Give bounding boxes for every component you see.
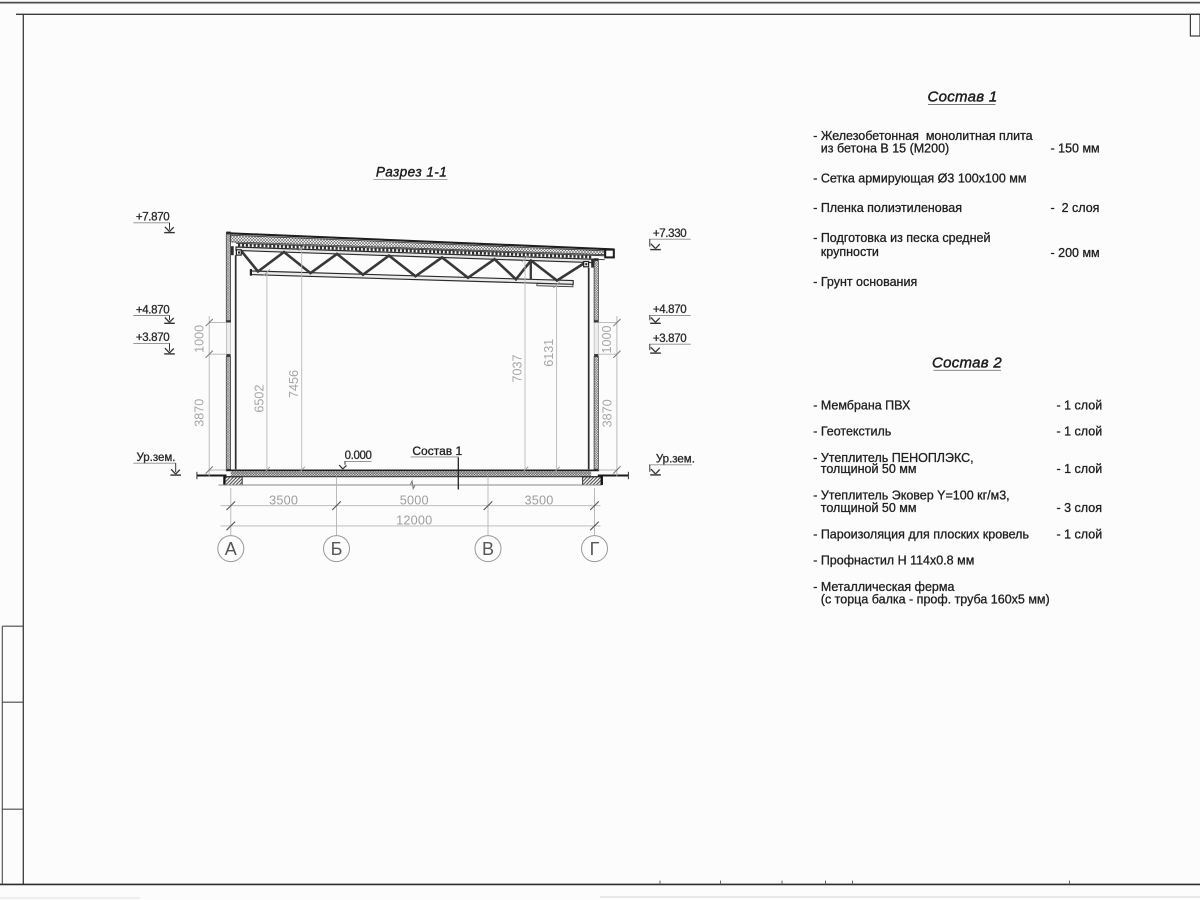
svg-text:Состав 1: Состав 1 <box>927 88 997 105</box>
svg-text:Б: Б <box>331 539 343 559</box>
svg-text:+3.870: +3.870 <box>136 332 169 344</box>
svg-text:толщиной 50 мм: толщиной 50 мм <box>821 501 917 515</box>
svg-text:5000: 5000 <box>400 494 429 508</box>
svg-text:- 1 слой: - 1 слой <box>1057 462 1103 476</box>
svg-text:Ур.зем.: Ур.зем. <box>656 454 695 466</box>
svg-text:3500: 3500 <box>269 494 298 508</box>
svg-text:1000: 1000 <box>600 325 614 353</box>
svg-text:0.000: 0.000 <box>345 450 372 462</box>
svg-text:- 2 слоя: - 2 слоя <box>1051 201 1100 215</box>
svg-text:(с торца балка - проф. труба 1: (с торца балка - проф. труба 160x5 мм) <box>821 593 1050 607</box>
svg-text:+4.870: +4.870 <box>136 304 169 316</box>
svg-text:- 1 слой: - 1 слой <box>1057 527 1103 541</box>
svg-text:Г: Г <box>590 539 600 559</box>
svg-text:- Пленка полиэтиленовая: - Пленка полиэтиленовая <box>813 201 962 215</box>
svg-text:3500: 3500 <box>524 494 553 508</box>
svg-text:крупности: крупности <box>821 245 879 259</box>
svg-text:из бетона В 15 (М200): из бетона В 15 (М200) <box>821 142 949 156</box>
svg-text:- 1 слой: - 1 слой <box>1057 425 1103 439</box>
svg-text:+7.870: +7.870 <box>136 212 169 224</box>
svg-text:Состав 2: Состав 2 <box>932 354 1002 371</box>
svg-text:А: А <box>225 539 237 559</box>
svg-text:- Профнастил Н 114x0.8 мм: - Профнастил Н 114x0.8 мм <box>813 554 974 568</box>
svg-text:Состав 1: Состав 1 <box>412 444 462 458</box>
svg-text:В: В <box>482 539 494 559</box>
svg-text:3870: 3870 <box>601 399 615 427</box>
svg-text:- Сетка армирующая Ø3 100x100: - Сетка армирующая Ø3 100x100 мм <box>813 172 1026 186</box>
svg-text:- 200 мм: - 200 мм <box>1051 246 1100 260</box>
svg-text:3870: 3870 <box>193 399 207 427</box>
svg-text:+7.330: +7.330 <box>653 228 686 240</box>
svg-text:7456: 7456 <box>287 370 301 398</box>
svg-text:12000: 12000 <box>396 514 432 528</box>
svg-text:6131: 6131 <box>542 339 556 367</box>
svg-text:1000: 1000 <box>192 325 206 353</box>
svg-text:- 1 слой: - 1 слой <box>1057 398 1103 412</box>
svg-text:- Грунт основания: - Грунт основания <box>813 275 917 289</box>
svg-text:- 3 слоя: - 3 слоя <box>1057 501 1102 515</box>
svg-text:- Геотекстиль: - Геотекстиль <box>813 425 891 439</box>
svg-text:Разрез 1-1: Разрез 1-1 <box>376 164 447 179</box>
svg-text:+4.870: +4.870 <box>653 304 686 316</box>
svg-text:7037: 7037 <box>510 354 524 382</box>
svg-text:6502: 6502 <box>252 385 266 413</box>
svg-text:+3.870: +3.870 <box>653 333 686 345</box>
svg-text:Ур.зем.: Ур.зем. <box>136 452 175 464</box>
svg-text:- Мембрана ПВХ: - Мембрана ПВХ <box>813 398 911 412</box>
svg-text:- Подготовка из песка средней: - Подготовка из песка средней <box>813 231 990 245</box>
svg-text:толщиной 50 мм: толщиной 50 мм <box>821 462 917 476</box>
svg-text:- Пароизоляция для плоских кро: - Пароизоляция для плоских кровель <box>813 527 1029 541</box>
svg-text:- 150 мм: - 150 мм <box>1051 142 1100 156</box>
